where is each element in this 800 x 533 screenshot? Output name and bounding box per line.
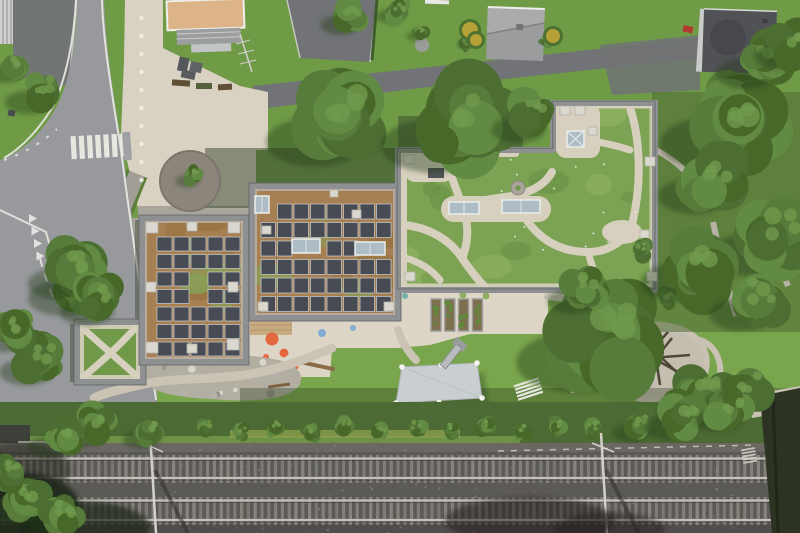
tree-highlight — [207, 420, 210, 423]
roof-flower — [501, 190, 503, 192]
tree-highlight — [641, 247, 644, 250]
tree-highlight — [64, 428, 71, 435]
ballast-stone — [530, 450, 532, 451]
ballast-stone — [701, 451, 703, 453]
ballast-stone — [400, 527, 402, 528]
ballast-stone — [201, 487, 203, 488]
ballast-stone — [638, 492, 640, 493]
ballast-stone — [609, 447, 611, 449]
solar-panel — [174, 237, 189, 251]
ballast-stone — [370, 486, 371, 488]
flower-bush-yellow — [470, 34, 482, 46]
ballast-stone — [704, 526, 705, 527]
ballast-stone — [370, 445, 371, 446]
solar-panel — [278, 297, 293, 312]
ballast-stone — [428, 482, 430, 483]
tree-highlight — [767, 294, 776, 303]
tree-highlight — [325, 106, 340, 121]
solar-panel — [360, 204, 375, 219]
ballast-stone — [339, 464, 340, 466]
ballast-stone — [742, 486, 744, 487]
tree-highlight — [463, 41, 465, 43]
plaza-dot — [139, 106, 143, 110]
tree-highlight — [243, 427, 246, 430]
tree-highlight — [102, 291, 111, 300]
ballast-stone — [568, 483, 570, 484]
ballast-stone — [734, 527, 735, 529]
tree-highlight — [12, 325, 19, 332]
tree-highlight — [449, 427, 453, 431]
solar-panel — [278, 260, 293, 275]
solar-panel — [261, 260, 276, 275]
bed-plant — [458, 323, 464, 329]
roof-flower — [514, 236, 516, 238]
ballast-stone — [404, 450, 406, 452]
ballast-stone — [543, 470, 544, 471]
ground-dot — [266, 333, 279, 346]
tree-highlight — [579, 274, 586, 281]
tree-highlight — [736, 397, 745, 406]
ballast-stone — [503, 462, 504, 464]
ballast-stone — [236, 527, 237, 528]
ballast-stone — [400, 486, 401, 488]
solar-panel — [327, 260, 342, 275]
ballast-stone — [316, 452, 318, 453]
ballast-stone — [475, 496, 477, 498]
ballast-stone — [558, 444, 560, 446]
ballast-stone — [342, 490, 344, 492]
plaza-dot — [139, 160, 143, 164]
ballast-stone — [332, 509, 333, 511]
ballast-stone — [276, 493, 278, 495]
ballast-stone — [633, 462, 634, 464]
tree-highlight — [593, 426, 598, 431]
solar-panel — [360, 297, 375, 312]
tree-highlight — [737, 105, 759, 127]
ballast-stone — [279, 455, 281, 457]
ballast-stone — [514, 483, 515, 484]
ballast-stone — [728, 497, 730, 499]
ballast-stone — [237, 471, 239, 473]
solar-panel — [157, 237, 172, 251]
tree-highlight — [342, 420, 346, 424]
tree-canopy — [421, 125, 459, 163]
solar-panel — [261, 278, 276, 293]
ballast-stone — [726, 489, 727, 490]
tree-highlight — [635, 243, 641, 249]
ballast-stone — [556, 447, 557, 449]
tree-highlight — [55, 508, 63, 516]
roof-flower — [603, 163, 605, 165]
solar-panel — [208, 255, 223, 269]
ballast-stone — [252, 508, 254, 509]
ballast-stone — [415, 486, 417, 487]
roof-flower — [592, 232, 594, 234]
bed-plant — [449, 304, 452, 307]
solar-panel — [225, 325, 240, 339]
ballast-pad — [588, 127, 597, 135]
ballast-stone — [266, 485, 268, 486]
tree-highlight — [756, 282, 770, 296]
ballast-stone — [704, 492, 705, 494]
ballast-stone — [327, 529, 329, 531]
bed-plant — [475, 319, 481, 325]
ballast-stone — [438, 488, 440, 490]
tree-highlight — [526, 99, 534, 107]
ballast-stone — [213, 526, 214, 527]
tree-highlight — [557, 422, 562, 427]
solar-panel — [157, 325, 172, 339]
tree-highlight — [519, 428, 523, 432]
ballast-pad — [405, 272, 415, 281]
ballast-stone — [358, 527, 359, 528]
ballast-pad — [146, 222, 158, 233]
ballast-stone — [733, 447, 735, 449]
ballast-stone — [568, 495, 569, 496]
ballast-stone — [212, 445, 214, 447]
ballast-stone — [335, 444, 336, 446]
tree-highlight — [11, 57, 18, 64]
plaza-dot — [139, 142, 143, 146]
tree-highlight — [747, 277, 757, 287]
solar-panel — [327, 204, 342, 219]
tree-highlight — [151, 421, 157, 427]
roof-flower — [542, 249, 544, 251]
ballast-stone — [291, 465, 293, 466]
solar-panel — [225, 255, 240, 269]
ballast-stone — [194, 532, 196, 533]
ballast-stone — [585, 497, 587, 498]
solar-panel — [311, 223, 326, 238]
solar-panel — [311, 204, 326, 219]
tree-highlight — [310, 429, 313, 432]
solar-panel — [208, 290, 223, 304]
ballast-stone — [702, 494, 703, 495]
solar-panel — [360, 223, 375, 238]
ballast-stone — [307, 531, 308, 532]
solar-panel — [208, 342, 223, 356]
ballast-pad — [384, 302, 394, 311]
roof-flower — [523, 226, 525, 228]
chimney — [516, 24, 523, 30]
ballast-stone — [354, 507, 355, 508]
ballast-stone — [658, 464, 659, 466]
solar-panel — [294, 204, 309, 219]
bed-plant — [474, 309, 479, 314]
ballast-stone — [549, 446, 551, 447]
ballast-pad — [187, 344, 197, 353]
ballast-stone — [339, 490, 341, 491]
ballast-stone — [341, 467, 342, 469]
plaza-dot — [139, 178, 143, 182]
roof-mottle — [586, 174, 612, 196]
ballast-pad — [227, 339, 239, 350]
tree-highlight — [411, 426, 415, 430]
ballast-stone — [541, 487, 542, 488]
ballast-stone — [680, 474, 682, 475]
ballast-stone — [115, 474, 117, 476]
tree-highlight — [484, 420, 488, 424]
tree-highlight — [47, 343, 56, 352]
solar-panel — [208, 325, 223, 339]
boulder — [212, 393, 217, 398]
ballast-stone — [739, 493, 740, 495]
ballast-stone — [238, 484, 240, 486]
tree-highlight — [642, 414, 648, 420]
ballast-stone — [459, 451, 461, 453]
solar-panel — [294, 297, 309, 312]
solar-panel — [377, 223, 392, 238]
ballast-stone — [731, 526, 733, 528]
ballast-stone — [506, 490, 507, 492]
ballast-stone — [731, 495, 733, 496]
ballast-stone — [244, 456, 246, 457]
ballast-stone — [237, 488, 238, 489]
ballast-stone — [258, 469, 260, 471]
tree-highlight — [32, 352, 41, 361]
ballast-stone — [157, 446, 158, 447]
ballast-stone — [611, 509, 612, 511]
ballast-stone — [511, 467, 512, 469]
ballast-stone — [318, 508, 320, 510]
ballast-stone — [340, 473, 342, 474]
roof-flower — [575, 166, 577, 168]
boulder — [180, 389, 187, 396]
tree-highlight — [307, 425, 311, 429]
ballast-stone — [740, 466, 742, 468]
plaza-dot — [139, 34, 143, 38]
plaza-dot — [139, 70, 143, 74]
roof-mottle — [422, 182, 440, 197]
ballast-stone — [330, 494, 332, 495]
ballast-stone — [763, 530, 764, 532]
solar-panel — [327, 278, 342, 293]
roof-flower — [634, 211, 636, 213]
solar-panel — [191, 325, 206, 339]
ballast-stone — [631, 496, 633, 498]
ballast-pad — [228, 282, 238, 292]
ballast-stone — [174, 491, 176, 492]
plaza-dot — [139, 88, 143, 92]
tree-highlight — [764, 207, 781, 224]
ballast-pad — [262, 226, 271, 234]
roof-flower — [585, 246, 587, 248]
tree-highlight — [784, 208, 797, 221]
ballast-stone — [727, 471, 729, 473]
solar-panel — [377, 278, 392, 293]
plaza-dot — [139, 52, 143, 56]
ballast-stone — [109, 497, 110, 498]
ballast-stone — [215, 489, 216, 490]
boulder — [233, 388, 238, 393]
solar-panel — [311, 278, 326, 293]
tree-highlight — [422, 28, 425, 31]
ballast-pad — [258, 302, 268, 311]
tree-highlight — [41, 353, 52, 364]
ballast-pad — [146, 282, 156, 292]
aerial-photo-stage — [0, 0, 800, 533]
tree-highlight — [721, 171, 733, 183]
ballast-stone — [639, 472, 641, 474]
ballast-stone — [244, 515, 245, 516]
ballast-stone — [270, 445, 272, 447]
solar-panel — [377, 204, 392, 219]
bed-plant — [434, 311, 438, 315]
bed-plant — [477, 304, 481, 308]
ground-dot — [318, 329, 326, 337]
solar-panel — [191, 307, 206, 321]
ballast-stone — [273, 447, 274, 448]
ballast-stone — [534, 492, 536, 493]
tree-highlight — [522, 424, 527, 429]
ballast-stone — [715, 488, 717, 490]
ballast-stone — [352, 466, 353, 468]
ballast-stone — [717, 490, 719, 492]
ballast-stone — [522, 494, 523, 495]
tree-highlight — [343, 8, 351, 16]
solar-panel — [344, 278, 359, 293]
ballast-stone — [425, 486, 427, 488]
ballast-stone — [371, 488, 373, 490]
solar-panel — [157, 342, 172, 356]
plaza-dot — [139, 124, 143, 128]
solar-panel — [157, 290, 172, 304]
ballast-stone — [260, 485, 262, 487]
ballast-stone — [459, 490, 460, 492]
ballast-stone — [402, 514, 404, 516]
ballast-pad — [645, 157, 655, 166]
ballast-stone — [575, 452, 577, 453]
solar-panel — [278, 223, 293, 238]
tree-highlight — [400, 5, 406, 11]
bed-plant — [463, 313, 468, 318]
solar-panel — [261, 241, 276, 256]
tree-highlight — [5, 465, 12, 472]
ballast-stone — [692, 470, 693, 472]
ballast-stone — [700, 494, 701, 496]
bed-plant — [449, 308, 453, 312]
flower-bush-yellow — [546, 29, 560, 43]
ballast-stone — [80, 462, 82, 463]
ballast-stone — [574, 450, 575, 452]
tree-highlight — [466, 93, 480, 107]
ballast-stone — [680, 465, 682, 467]
tree-highlight — [417, 423, 422, 428]
shade-sail — [393, 360, 485, 406]
solar-panel — [360, 260, 375, 275]
tree-highlight — [747, 293, 759, 305]
tree-highlight — [150, 426, 155, 431]
ballast-stone — [157, 486, 159, 488]
solar-panel — [278, 241, 293, 256]
solar-panel — [278, 204, 293, 219]
tree-highlight — [393, 7, 397, 11]
solar-panel — [327, 223, 342, 238]
tree-highlight — [98, 286, 105, 293]
solar-panel — [294, 260, 309, 275]
boulder — [188, 365, 196, 373]
solar-panel — [208, 272, 223, 286]
ballast-stone — [279, 467, 280, 469]
roof-flower — [602, 212, 604, 214]
ballast-pad — [187, 222, 197, 231]
ballast-stone — [415, 483, 416, 485]
tree-highlight — [46, 75, 55, 84]
solar-panel — [294, 223, 309, 238]
ballast-stone — [188, 528, 190, 530]
ballast-stone — [414, 505, 416, 506]
tree-highlight — [588, 423, 592, 427]
tree-highlight — [55, 499, 63, 507]
ballast-stone — [501, 444, 502, 446]
tree-highlight — [458, 110, 474, 126]
ballast-stone — [503, 491, 504, 492]
ballast-stone — [327, 493, 329, 495]
tree-highlight — [192, 169, 197, 174]
tree-highlight — [202, 422, 206, 426]
solar-panel — [208, 237, 223, 251]
ballast-stone — [199, 449, 201, 451]
bed-plant — [432, 305, 436, 309]
solar-panel — [157, 307, 172, 321]
solar-panel — [225, 237, 240, 251]
ballast-stone — [762, 506, 763, 507]
ballast-stone — [91, 494, 93, 496]
tree-highlight — [380, 427, 384, 431]
ballast-pad — [640, 230, 649, 238]
ballast-stone — [158, 527, 160, 528]
ballast-stone — [249, 445, 251, 446]
ballast-stone — [306, 503, 307, 504]
ballast-stone — [289, 494, 290, 495]
ballast-stone — [742, 513, 743, 515]
ballast-stone — [183, 514, 185, 516]
ballast-stone — [262, 527, 263, 529]
ballast-stone — [713, 515, 714, 517]
ballast-stone — [363, 491, 364, 493]
ballast-pad — [560, 106, 570, 115]
solar-panel — [157, 255, 172, 269]
solar-panel — [294, 278, 309, 293]
ballast-stone — [338, 495, 339, 496]
solar-panel — [278, 278, 293, 293]
roof-flower — [607, 241, 609, 243]
ballast-stone — [751, 495, 752, 496]
ballast-stone — [252, 453, 254, 454]
aerial-photo — [0, 0, 800, 533]
tree-highlight — [678, 405, 690, 417]
bed-plant — [433, 321, 437, 325]
ballast-stone — [382, 446, 383, 448]
ballast-stone — [129, 483, 131, 485]
ballast-stone — [228, 526, 230, 528]
ballast-stone — [439, 486, 440, 488]
tree-highlight — [642, 242, 646, 246]
ballast-stone — [171, 494, 172, 495]
solar-panel — [327, 297, 342, 312]
boulder — [162, 366, 166, 370]
tree-highlight — [10, 316, 16, 322]
bed-plant — [444, 300, 450, 306]
tree-highlight — [694, 245, 711, 262]
roof-flower — [553, 187, 555, 189]
ballast-stone — [111, 486, 113, 488]
tree-highlight — [65, 506, 74, 515]
ballast-stone — [325, 510, 327, 512]
ballast-stone — [328, 491, 329, 492]
ballast-stone — [331, 448, 332, 449]
solar-panel — [191, 237, 206, 251]
